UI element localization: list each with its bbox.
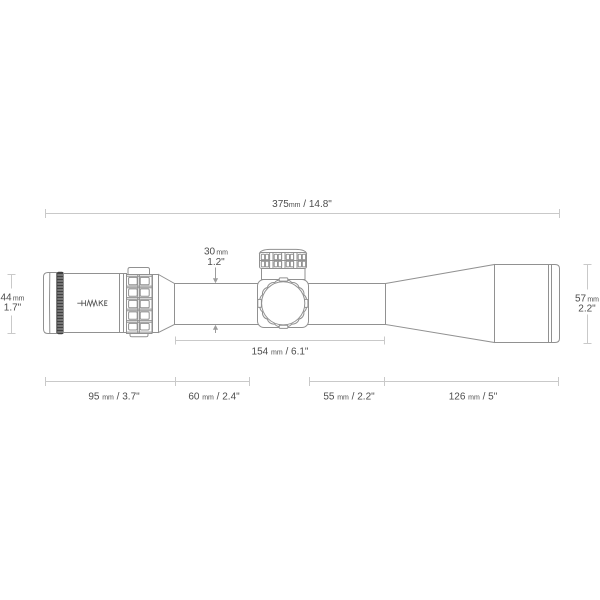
svg-text:1.7": 1.7" (4, 303, 22, 314)
svg-text:2.2": 2.2" (578, 303, 596, 314)
svg-text:55 mm / 2.2": 55 mm / 2.2" (323, 392, 375, 403)
svg-text:95 mm / 3.7": 95 mm / 3.7" (88, 392, 140, 403)
svg-text:375mm / 14.8": 375mm / 14.8" (272, 199, 332, 210)
svg-text:60 mm / 2.4": 60 mm / 2.4" (188, 392, 240, 403)
svg-text:1.2": 1.2" (207, 257, 225, 268)
